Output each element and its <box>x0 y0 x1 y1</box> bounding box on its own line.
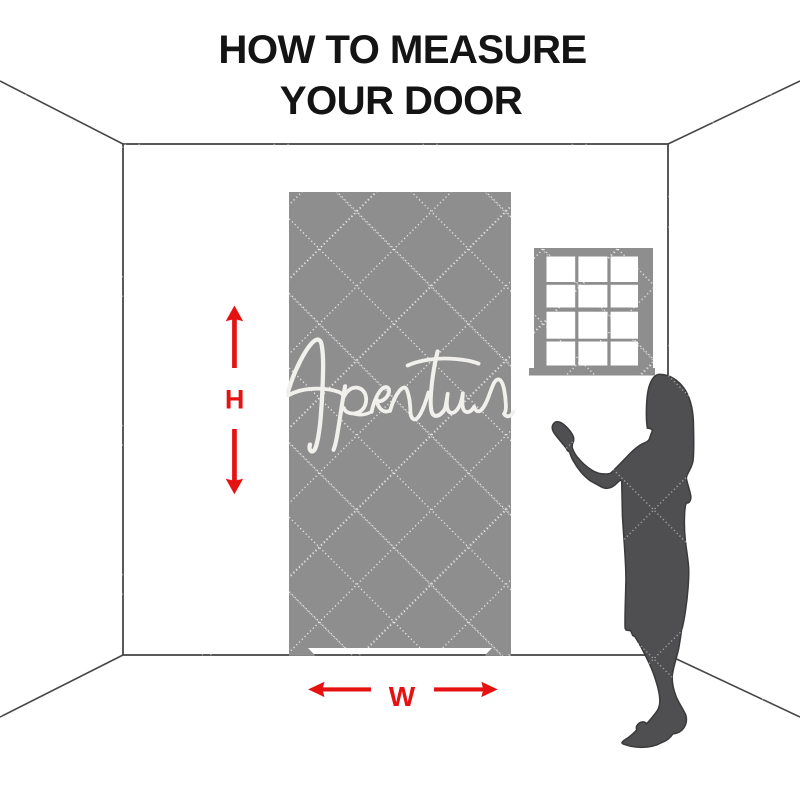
svg-text:W: W <box>389 681 416 712</box>
svg-text:YOUR DOOR: YOUR DOOR <box>280 78 523 123</box>
svg-text:H: H <box>225 385 245 415</box>
svg-text:HOW TO MEASURE: HOW TO MEASURE <box>218 27 586 72</box>
